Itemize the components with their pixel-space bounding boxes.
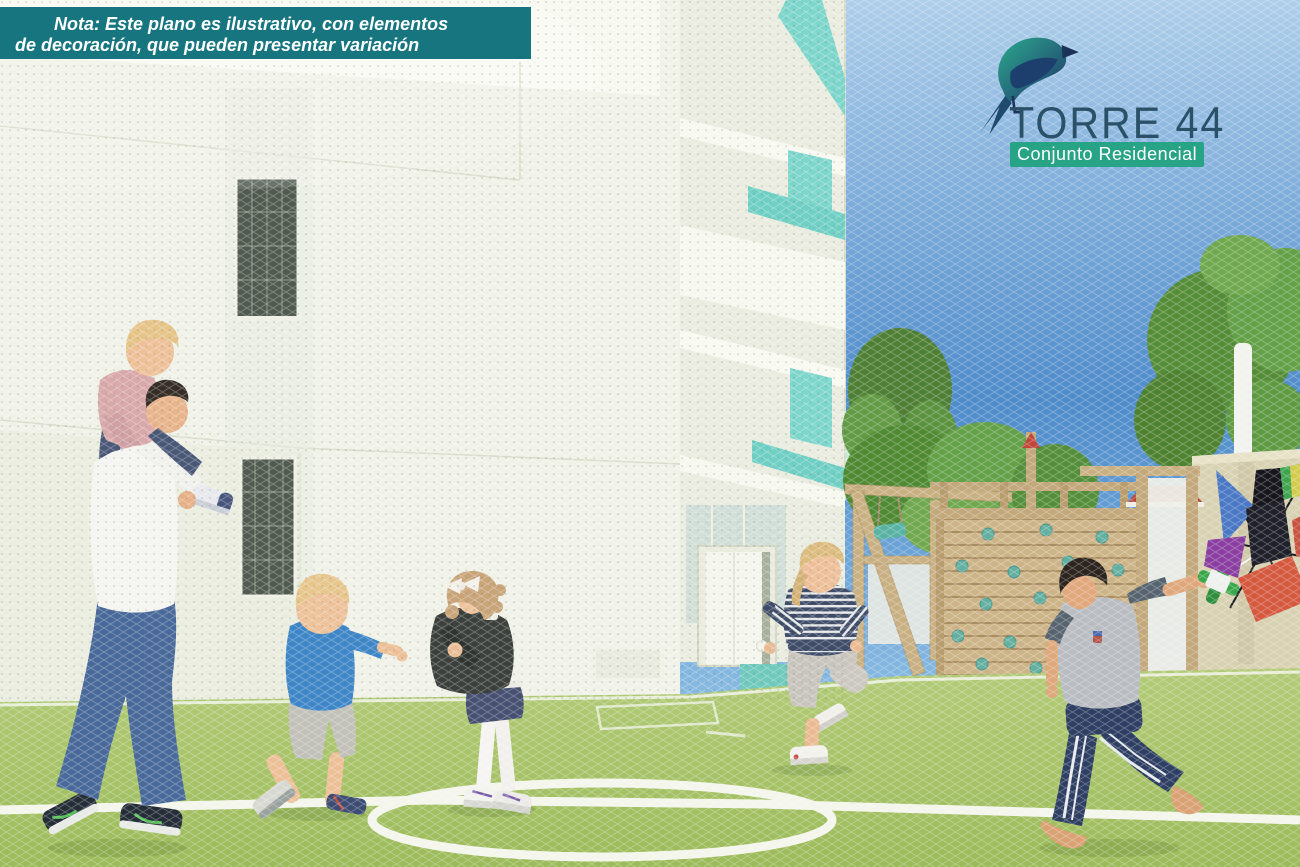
facade-mesh-overlay xyxy=(0,0,845,705)
disclaimer-banner: Nota: Este plano es ilustrativo, con ele… xyxy=(0,7,531,59)
disclaimer-line-1: Nota: Este plano es ilustrativo, con ele… xyxy=(0,14,531,35)
render-canvas: Nota: Este plano es ilustrativo, con ele… xyxy=(0,0,1300,867)
logo-title: TORRE 44 xyxy=(1009,98,1225,148)
logo-subtitle-badge: Conjunto Residencial xyxy=(1010,142,1204,167)
torre44-logo: TORRE 44 Conjunto Residencial xyxy=(960,6,1260,171)
disclaimer-line-2: de decoración, que pueden presentar vari… xyxy=(0,35,531,56)
